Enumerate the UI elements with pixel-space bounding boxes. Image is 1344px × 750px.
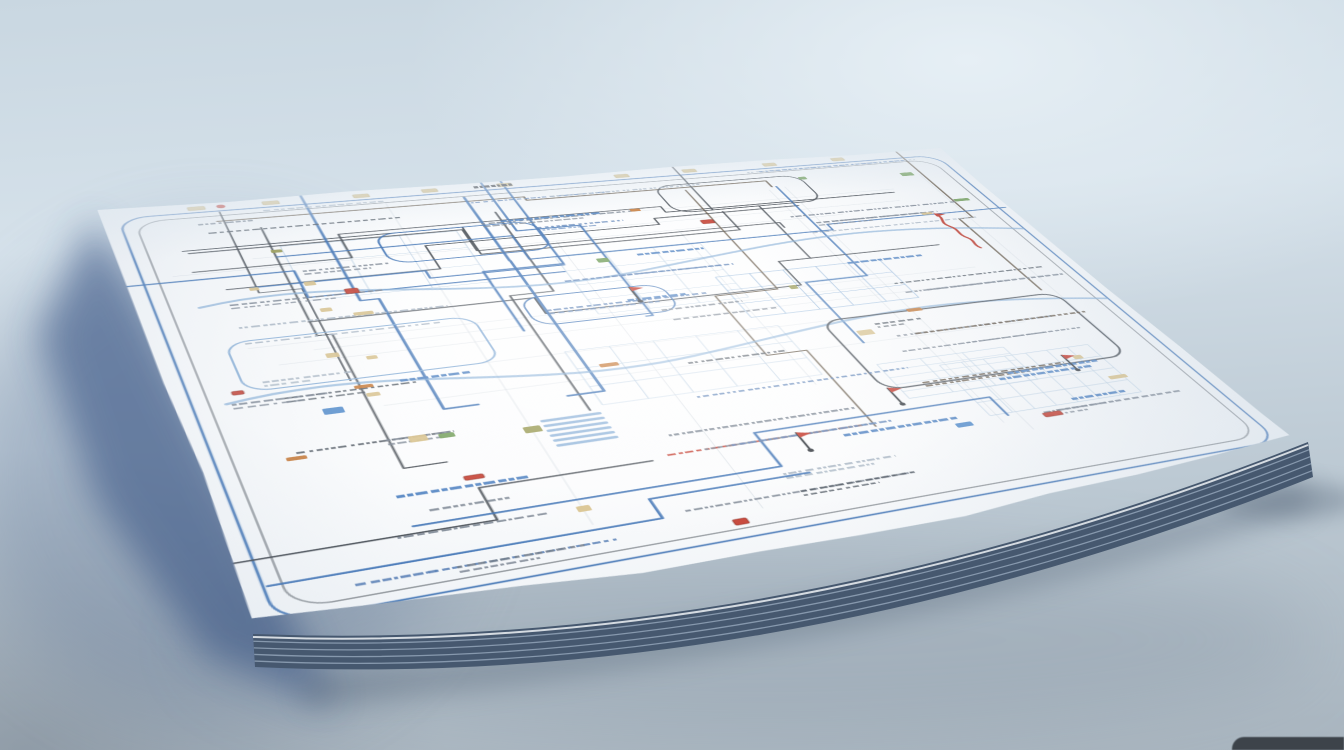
foreground-corner-object — [1232, 737, 1344, 750]
scene-canvas: Photorealistic render of a large folded … — [0, 0, 1344, 750]
